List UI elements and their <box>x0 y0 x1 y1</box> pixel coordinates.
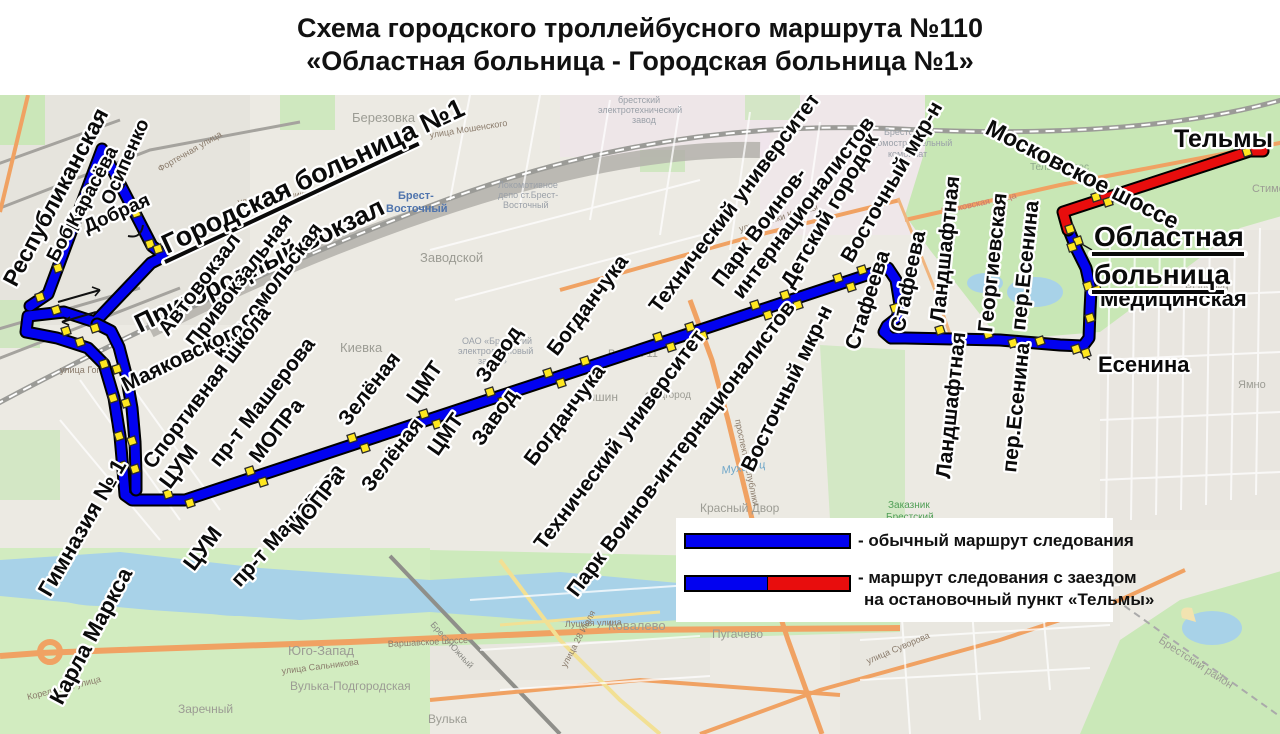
stop-marker[interactable] <box>419 409 429 419</box>
stop-marker[interactable] <box>750 300 760 310</box>
stop-marker[interactable] <box>108 393 118 403</box>
stop-marker[interactable] <box>360 443 370 453</box>
stop-marker[interactable] <box>130 464 140 474</box>
map-legend: - обычный маршрут следования - маршрут с… <box>676 518 1113 622</box>
stop-marker[interactable] <box>935 325 945 335</box>
basemap-label: Локомотивное <box>498 180 558 190</box>
basemap-label: Восточный <box>386 203 448 215</box>
city-map[interactable]: БерезовкаБрест-ВосточныйЗаводскойКиевкаВ… <box>0 95 1280 734</box>
stop-label[interactable]: больница <box>1094 259 1230 290</box>
stop-marker[interactable] <box>846 282 856 292</box>
stop-marker[interactable] <box>1065 224 1075 234</box>
stop-marker[interactable] <box>112 364 122 374</box>
stop-marker[interactable] <box>543 368 553 378</box>
stop-marker[interactable] <box>1081 348 1091 358</box>
basemap-label: Красный Двор <box>700 501 780 515</box>
legend-detour-route-swatch <box>684 575 851 592</box>
legend-regular-route-label: - обычный маршрут следования <box>858 531 1134 551</box>
basemap-label: депо ст.Брест- <box>498 190 558 200</box>
stop-marker[interactable] <box>485 387 495 397</box>
legend-detour-route-label-line2: на остановочный пункт «Тельмы» <box>864 590 1154 610</box>
basemap-label: Ямно <box>1238 379 1266 391</box>
stop-marker[interactable] <box>1067 242 1077 252</box>
basemap-label: завод <box>632 115 657 125</box>
stop-marker[interactable] <box>833 273 843 283</box>
stop-marker[interactable] <box>99 359 109 369</box>
basemap-label: Заказник <box>888 500 930 511</box>
page-title-line1: Схема городского троллейбусного маршрута… <box>0 12 1280 45</box>
basemap-label: электротехнический <box>598 105 682 115</box>
legend-detour-route-label-line1: - маршрут следования с заездом <box>858 568 1137 588</box>
map-canvas[interactable]: БерезовкаБрест-ВосточныйЗаводскойКиевкаВ… <box>0 95 1280 734</box>
stop-marker[interactable] <box>61 326 71 336</box>
basemap-label: Луцкая улица <box>565 617 622 629</box>
stop-marker[interactable] <box>185 498 195 508</box>
basemap-label: Заводской <box>420 250 483 265</box>
stop-marker[interactable] <box>245 466 255 476</box>
stop-label[interactable]: Тельмы <box>1174 125 1273 153</box>
stop-marker[interactable] <box>51 305 61 315</box>
stop-marker[interactable] <box>653 332 663 342</box>
stop-marker[interactable] <box>127 436 137 446</box>
stop-marker[interactable] <box>1035 336 1045 346</box>
stop-marker[interactable] <box>75 337 85 347</box>
stop-marker[interactable] <box>556 378 566 388</box>
stop-marker[interactable] <box>35 292 45 302</box>
basemap-label: Пугачево <box>712 627 763 641</box>
stop-marker[interactable] <box>114 431 124 441</box>
trolleybus-route-map-page: Схема городского троллейбусного маршрута… <box>0 0 1280 734</box>
basemap-label: Киевка <box>340 340 383 355</box>
stop-marker[interactable] <box>347 433 357 443</box>
page-title-line2: «Областная больница - Городская больница… <box>0 45 1280 78</box>
basemap-label: Юго-Запад <box>288 643 355 658</box>
stop-marker[interactable] <box>1071 344 1081 354</box>
stop-marker[interactable] <box>90 323 100 333</box>
basemap-label: брестский <box>618 95 660 105</box>
basemap-label: Вулька-Подгородская <box>290 679 411 693</box>
stop-label[interactable]: Есенина <box>1098 352 1190 377</box>
stop-marker[interactable] <box>1085 313 1095 323</box>
stop-marker[interactable] <box>153 244 163 254</box>
stop-marker[interactable] <box>121 398 131 408</box>
stop-marker[interactable] <box>258 477 268 487</box>
map-header: Схема городского троллейбусного маршрута… <box>0 0 1280 95</box>
basemap-label: Брест- <box>398 190 434 202</box>
basemap-label: Вулька <box>428 712 467 726</box>
legend-regular-route-swatch <box>684 533 851 549</box>
basemap-label: Заречный <box>178 702 233 716</box>
basemap-label: Восточный <box>503 200 549 210</box>
basemap-label: Стимово <box>1252 183 1280 195</box>
